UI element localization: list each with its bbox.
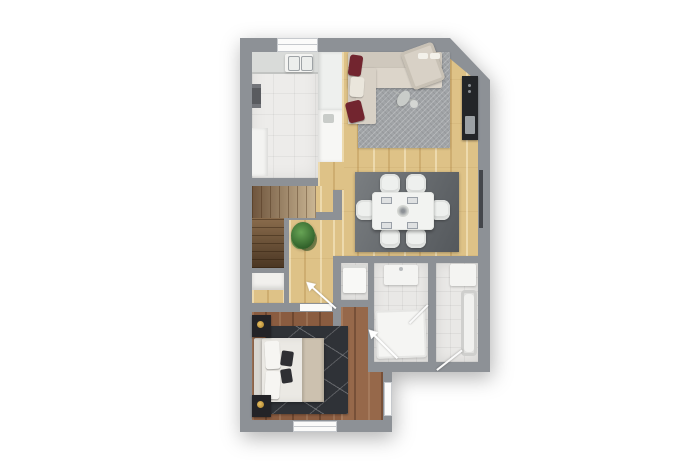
lamp-top xyxy=(257,321,264,328)
floor-plan-canvas xyxy=(0,0,700,467)
dining-chair-top-1 xyxy=(380,174,400,194)
entry-door xyxy=(384,382,392,416)
white-pillow xyxy=(349,77,364,98)
closet-floor xyxy=(252,290,284,303)
sofa-cushion-white-1 xyxy=(418,53,428,59)
entry-floor xyxy=(368,372,383,420)
sink-basin-left xyxy=(288,56,300,71)
kitchen-counter-item xyxy=(323,114,334,123)
window-top xyxy=(277,38,318,52)
bathroom-vanity xyxy=(450,264,476,286)
dining-chair-bottom-2 xyxy=(406,228,426,248)
potted-plant xyxy=(291,222,315,249)
kitchen-counter-right-upper xyxy=(318,52,342,110)
decor-stool xyxy=(410,100,418,108)
bathtub-inner xyxy=(464,294,474,352)
tv-screen xyxy=(465,116,475,134)
kitchen-cabinet-left xyxy=(252,128,268,176)
dining-chair-bottom-1 xyxy=(380,228,400,248)
console-knob-1 xyxy=(468,84,471,87)
building-footprint xyxy=(240,38,490,432)
bed-throw xyxy=(302,338,324,402)
window-slit-right xyxy=(479,170,483,228)
staircase-lower-flight xyxy=(252,218,284,268)
window-top-mullion xyxy=(277,44,318,45)
dining-chair-top-2 xyxy=(406,174,426,194)
exterior-walls xyxy=(240,38,490,432)
staircase-upper-flight xyxy=(252,186,316,218)
shower-tray xyxy=(375,309,427,359)
door-swing-arrow-entry xyxy=(418,394,443,419)
sink-tap xyxy=(399,267,403,271)
console-knob-2 xyxy=(468,90,471,93)
lamp-bottom xyxy=(257,401,264,408)
placemat-3 xyxy=(381,222,392,229)
sink-basin-right xyxy=(301,56,313,71)
window-bottom-mullion xyxy=(293,426,337,427)
sofa-cushion-white-2 xyxy=(430,53,440,59)
hall-dining-connector-floor xyxy=(333,220,342,256)
placemat-1 xyxy=(381,197,392,204)
placemat-2 xyxy=(407,197,418,204)
placemat-4 xyxy=(407,222,418,229)
kitchen-radiator xyxy=(252,84,261,108)
bedroom-door-threshold xyxy=(300,304,332,311)
bed-accent-pillow-2 xyxy=(280,368,293,384)
washing-machine xyxy=(343,265,366,293)
bed-pillow-1 xyxy=(264,341,280,370)
table-centerpiece xyxy=(397,205,409,217)
closet-shelf xyxy=(252,273,284,290)
bed-accent-pillow-1 xyxy=(280,350,294,367)
